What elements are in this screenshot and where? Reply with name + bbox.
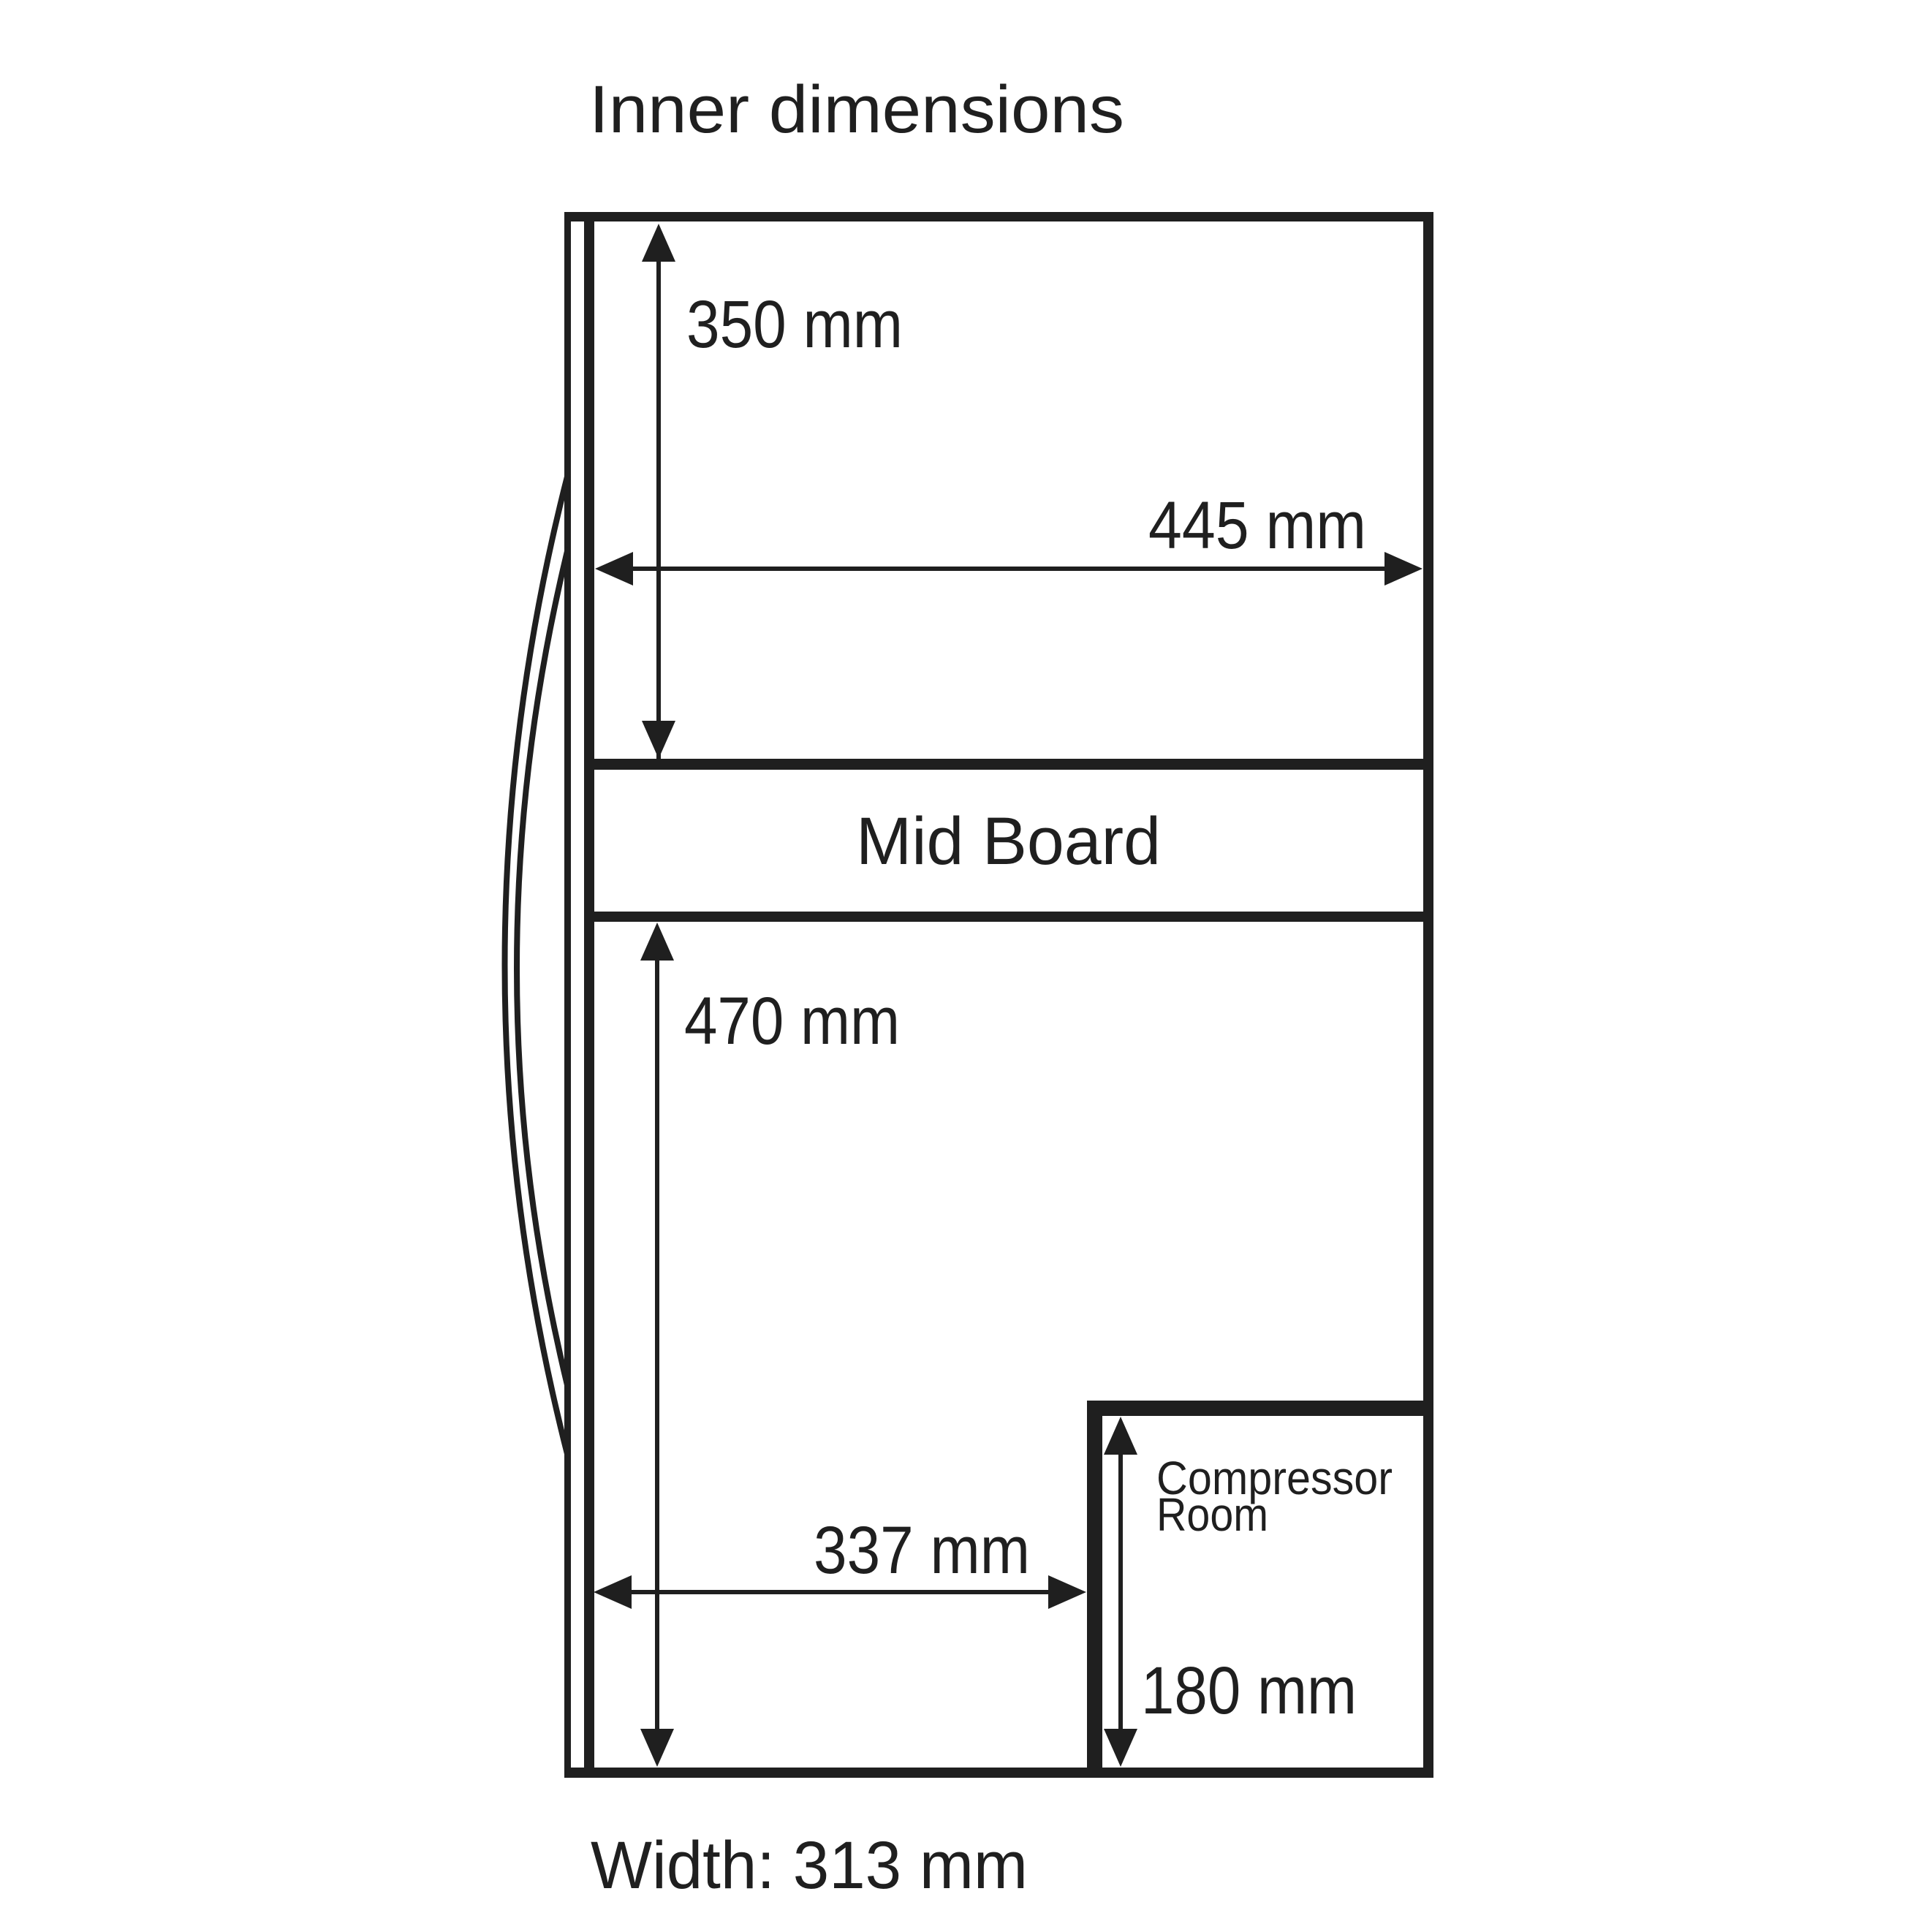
svg-text:445 mm: 445 mm: [1148, 488, 1366, 563]
svg-text:350 mm: 350 mm: [686, 287, 903, 362]
svg-text:Room: Room: [1156, 1488, 1268, 1541]
svg-text:470 mm: 470 mm: [684, 984, 900, 1058]
svg-text:Mid Board: Mid Board: [856, 804, 1161, 879]
svg-text:Width: 313 mm: Width: 313 mm: [591, 1828, 1028, 1903]
svg-text:Inner dimensions: Inner dimensions: [589, 72, 1124, 147]
svg-text:180 mm: 180 mm: [1141, 1653, 1357, 1728]
svg-text:337 mm: 337 mm: [814, 1513, 1030, 1588]
